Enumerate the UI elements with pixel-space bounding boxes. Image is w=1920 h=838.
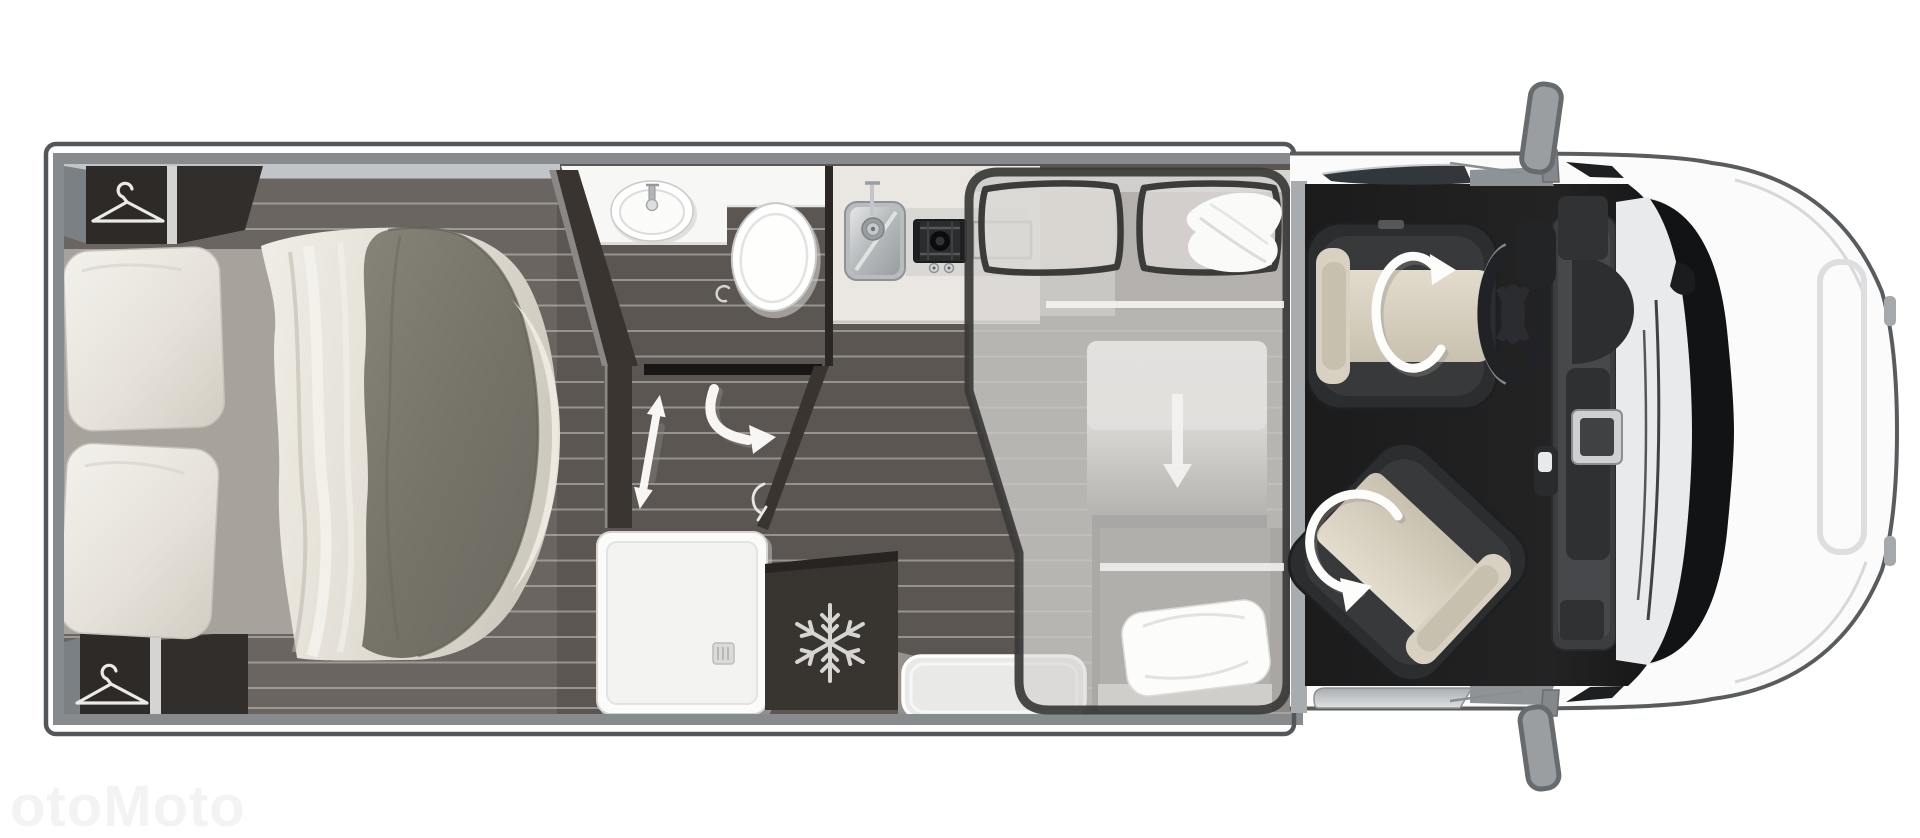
svg-text:otoMoto: otoMoto	[10, 774, 246, 838]
